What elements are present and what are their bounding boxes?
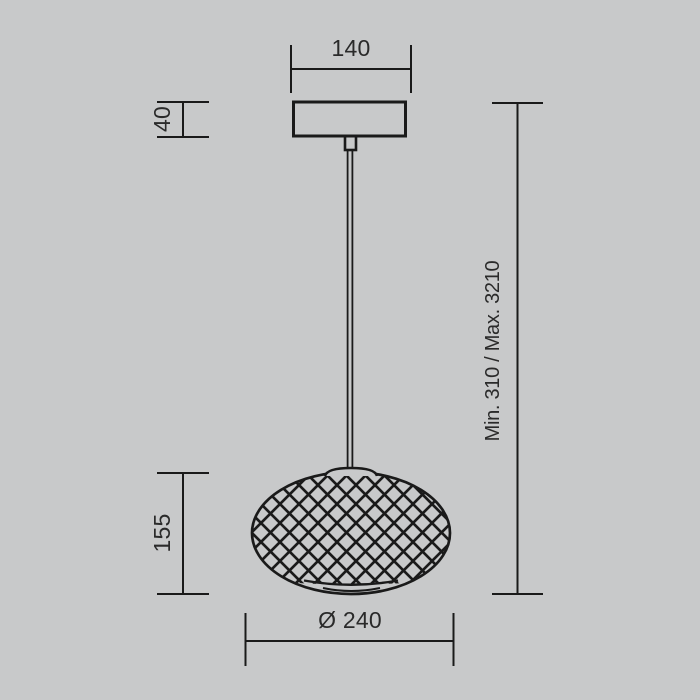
dim-shade-diameter: Ø 240 <box>246 607 454 666</box>
dim-label-canopy-height: 40 <box>149 106 175 132</box>
shade-bottom-cap-inner-line <box>323 588 380 591</box>
dim-suspension-height: Min. 310 / Max. 3210 <box>482 103 543 594</box>
dim-label-shade-diameter: Ø 240 <box>318 607 382 633</box>
dim-label-shade-height: 155 <box>149 514 175 553</box>
dim-shade-height: 155 <box>149 473 209 594</box>
shade-lattice-pattern <box>248 460 454 600</box>
dimension-drawing: 140 40 Min. 310 / Max. 3210 155 <box>0 0 700 700</box>
suspension-cord <box>348 150 353 469</box>
dim-canopy-width: 140 <box>291 35 411 93</box>
dim-label-suspension-height: Min. 310 / Max. 3210 <box>482 260 504 441</box>
dim-canopy-height: 40 <box>149 102 209 137</box>
lamp-shade <box>248 460 454 600</box>
dim-label-canopy-width: 140 <box>332 35 371 61</box>
cord-connector <box>345 136 356 150</box>
ceiling-canopy <box>294 102 406 136</box>
lamp-diagram-canvas: 140 40 Min. 310 / Max. 3210 155 <box>0 0 700 700</box>
